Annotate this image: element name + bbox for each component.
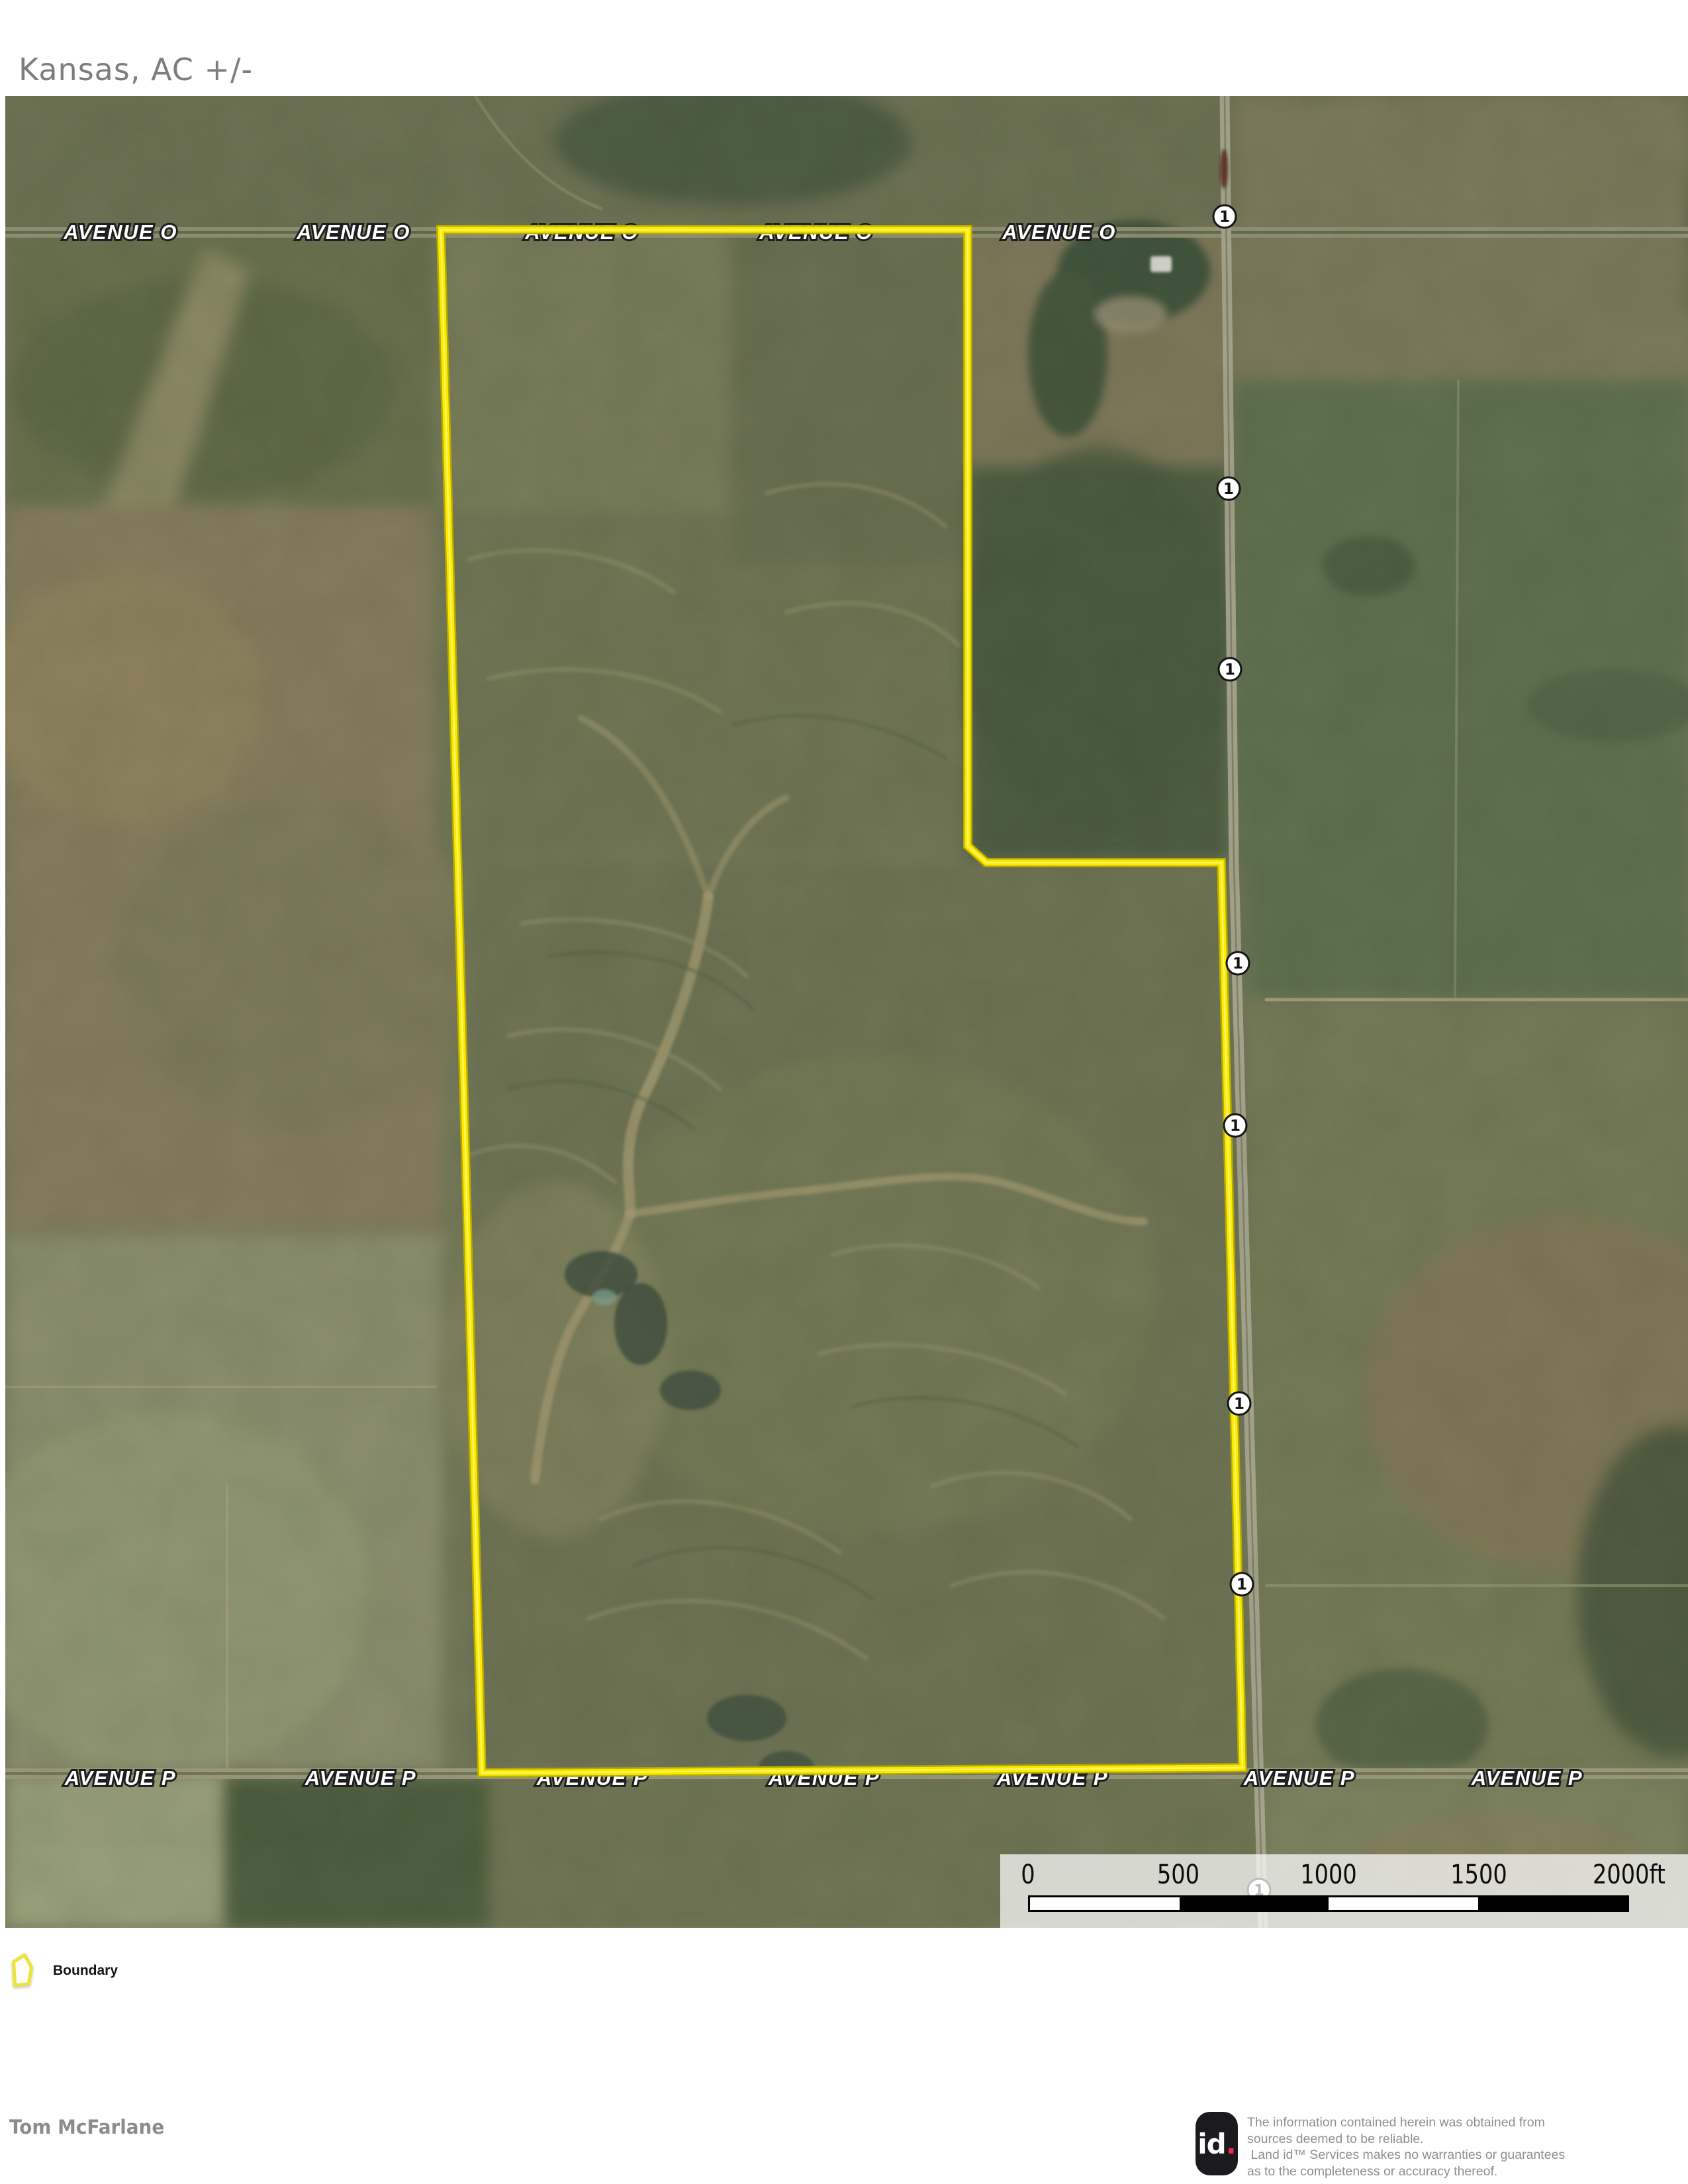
scale-tick: 2000ft: [1593, 1860, 1665, 1890]
road-label-avenue-o: AVENUE O: [296, 220, 410, 244]
route-marker: 1: [1217, 477, 1240, 500]
road-label-avenue-p: AVENUE P: [1243, 1766, 1355, 1789]
disclaimer-line: The information contained herein was obt…: [1247, 2114, 1565, 2131]
grain-texture: [5, 96, 1688, 1928]
map-graphic: AVENUE OAVENUE OAVENUE OAVENUE OAVENUE O…: [5, 96, 1688, 1928]
route-marker-label: 1: [1234, 1396, 1244, 1413]
scale-bar-segments: [1028, 1895, 1629, 1912]
branding-block: id. The information contained herein was…: [1196, 2112, 1565, 2179]
scale-tick: 500: [1157, 1860, 1199, 1890]
boundary-swatch-icon: [9, 1952, 36, 1989]
road-label-avenue-p: AVENUE P: [305, 1766, 416, 1789]
route-marker-label: 1: [1225, 661, 1235, 679]
route-marker-label: 1: [1219, 209, 1230, 226]
scale-segment: [1180, 1897, 1329, 1910]
land-id-logo: id.: [1196, 2112, 1238, 2175]
scale-tick: 1500: [1450, 1860, 1507, 1890]
scale-segment: [1329, 1897, 1478, 1910]
legend-item-boundary: Boundary: [53, 1963, 118, 1979]
logo-id-text: id: [1197, 2128, 1225, 2160]
scale-tick: 1000: [1300, 1860, 1357, 1890]
route-marker: 1: [1231, 1573, 1253, 1595]
route-marker: 1: [1228, 1392, 1250, 1415]
logo-dot: .: [1226, 2128, 1236, 2160]
road-label-avenue-o: AVENUE O: [1002, 220, 1116, 244]
disclaimer-line: Land id™ Services makes no warranties or…: [1247, 2147, 1565, 2163]
legend: Boundary: [9, 1948, 118, 1994]
scale-segment: [1478, 1897, 1628, 1910]
page-title: Kansas, AC +/-: [19, 52, 253, 87]
route-marker-label: 1: [1233, 955, 1243, 973]
route-marker: 1: [1219, 658, 1241, 681]
disclaimer-line: sources deemed to be reliable.: [1247, 2131, 1565, 2148]
scale-bar: 0500100015002000ft: [1000, 1854, 1688, 1928]
page: Kansas, AC +/-: [0, 0, 1688, 2184]
route-marker-label: 1: [1237, 1576, 1247, 1593]
road-label-avenue-p: AVENUE P: [64, 1766, 176, 1789]
scale-segment: [1030, 1897, 1180, 1910]
map-canvas: AVENUE OAVENUE OAVENUE OAVENUE OAVENUE O…: [5, 96, 1688, 1928]
road-label-avenue-o: AVENUE O: [63, 220, 177, 244]
disclaimer-text: The information contained herein was obt…: [1247, 2112, 1565, 2179]
preparer-name: Tom McFarlane: [9, 2116, 164, 2138]
route-marker: 1: [1224, 1114, 1246, 1137]
road-label-avenue-p: AVENUE P: [1471, 1766, 1583, 1789]
route-marker-label: 1: [1223, 481, 1234, 498]
route-marker: 1: [1227, 952, 1249, 974]
route-marker: 1: [1213, 205, 1236, 228]
route-marker-label: 1: [1230, 1117, 1241, 1135]
disclaimer-line: as to the completeness or accuracy there…: [1247, 2163, 1565, 2180]
scale-tick: 0: [1021, 1860, 1035, 1890]
